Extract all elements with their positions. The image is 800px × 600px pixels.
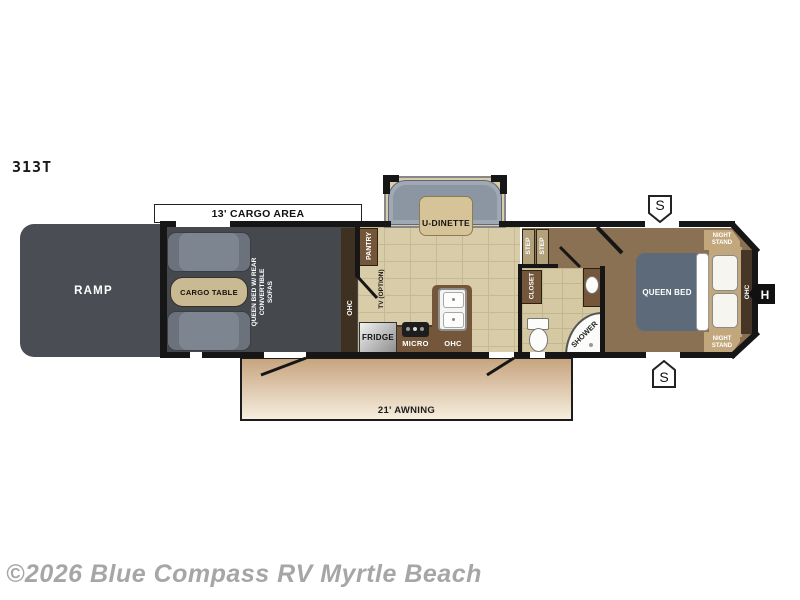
model-number: 313T bbox=[12, 158, 52, 176]
queen-bed-label: QUEEN BED bbox=[642, 288, 691, 297]
fridge-label: FRIDGE bbox=[362, 333, 394, 342]
pillow bbox=[712, 255, 738, 291]
queen-bed: QUEEN BED bbox=[636, 253, 698, 331]
kitchen-sink bbox=[438, 288, 467, 331]
ramp-area: RAMP bbox=[20, 224, 167, 357]
cargo-table-label: CARGO TABLE bbox=[180, 288, 238, 297]
micro-label: MICRO bbox=[399, 336, 432, 350]
speaker-marker-bottom: S bbox=[653, 361, 675, 387]
step-1-label: STEP bbox=[523, 228, 533, 264]
ohc-bedroom-label: OHC bbox=[742, 277, 752, 307]
ohc-rear-label: OHC bbox=[344, 288, 356, 328]
sink-basin bbox=[443, 312, 464, 328]
cargo-area-dimension: 13' CARGO AREA bbox=[154, 204, 362, 223]
hitch-label: H bbox=[761, 288, 770, 302]
ramp-label: RAMP bbox=[74, 285, 113, 297]
toilet-bowl bbox=[529, 328, 548, 352]
convertible-sofa-top bbox=[167, 232, 251, 272]
night-stand-label: NIGHT STAND bbox=[704, 336, 740, 350]
night-stand-label: NIGHT STAND bbox=[704, 233, 740, 247]
u-dinette-label: U-DINETTE bbox=[422, 218, 470, 228]
cargo-table: CARGO TABLE bbox=[170, 277, 248, 307]
bath-sink bbox=[585, 276, 599, 294]
ohc-kitchen-label: OHC bbox=[437, 336, 469, 350]
cargo-area-label: 13' CARGO AREA bbox=[212, 208, 305, 220]
pillow bbox=[712, 293, 738, 328]
awning-label: 21' AWNING bbox=[242, 405, 571, 416]
stove-cooktop bbox=[402, 322, 429, 337]
closet-label: CLOSET bbox=[527, 270, 537, 303]
sink-basin bbox=[443, 292, 464, 308]
u-dinette-table: U-DINETTE bbox=[419, 196, 473, 236]
convertible-sofa-note: QUEEN BED W/ REAR CONVERTIBLE SOFAS bbox=[255, 257, 271, 327]
speaker-bottom-label: S bbox=[659, 369, 668, 385]
bed-linens bbox=[696, 253, 709, 331]
speaker-top-label: S bbox=[655, 197, 664, 213]
speaker-marker-top: S bbox=[649, 196, 671, 222]
dealer-watermark: ©2026 Blue Compass RV Myrtle Beach bbox=[6, 560, 482, 589]
awning: 21' AWNING bbox=[240, 357, 573, 421]
fridge: FRIDGE bbox=[359, 322, 397, 353]
convertible-sofa-bottom bbox=[167, 311, 251, 351]
step-2-label: STEP bbox=[537, 228, 547, 264]
tv-option-label: TV (OPTION) bbox=[376, 260, 386, 318]
pantry-label: PANTRY bbox=[363, 228, 375, 264]
